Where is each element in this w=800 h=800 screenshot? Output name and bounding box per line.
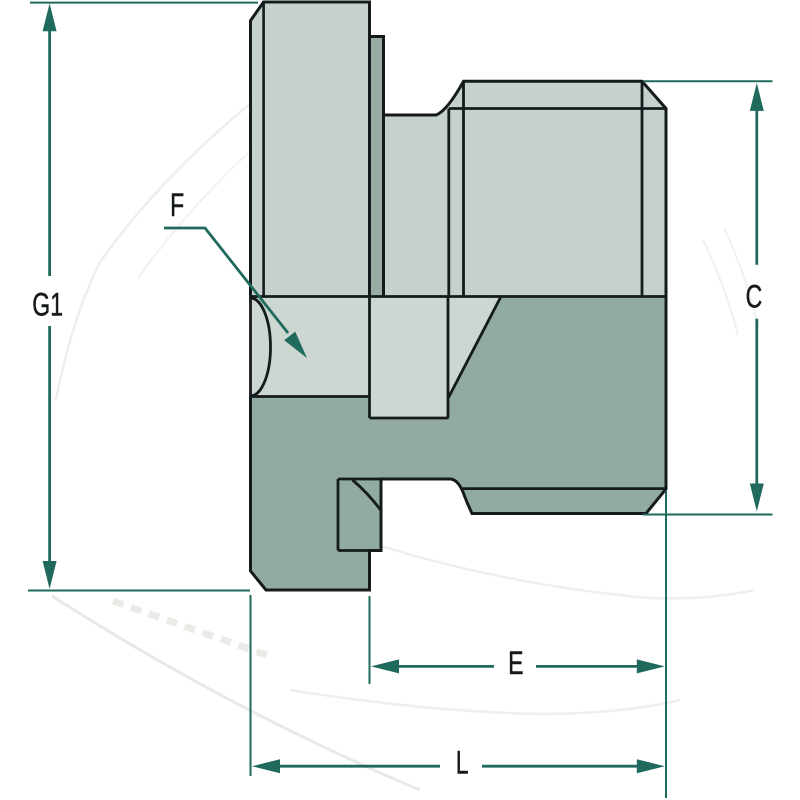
svg-text:F: F bbox=[170, 187, 184, 223]
svg-text:L: L bbox=[456, 745, 469, 781]
svg-text:G1: G1 bbox=[32, 287, 63, 323]
svg-text:E: E bbox=[508, 645, 523, 681]
svg-text:C: C bbox=[746, 279, 763, 315]
